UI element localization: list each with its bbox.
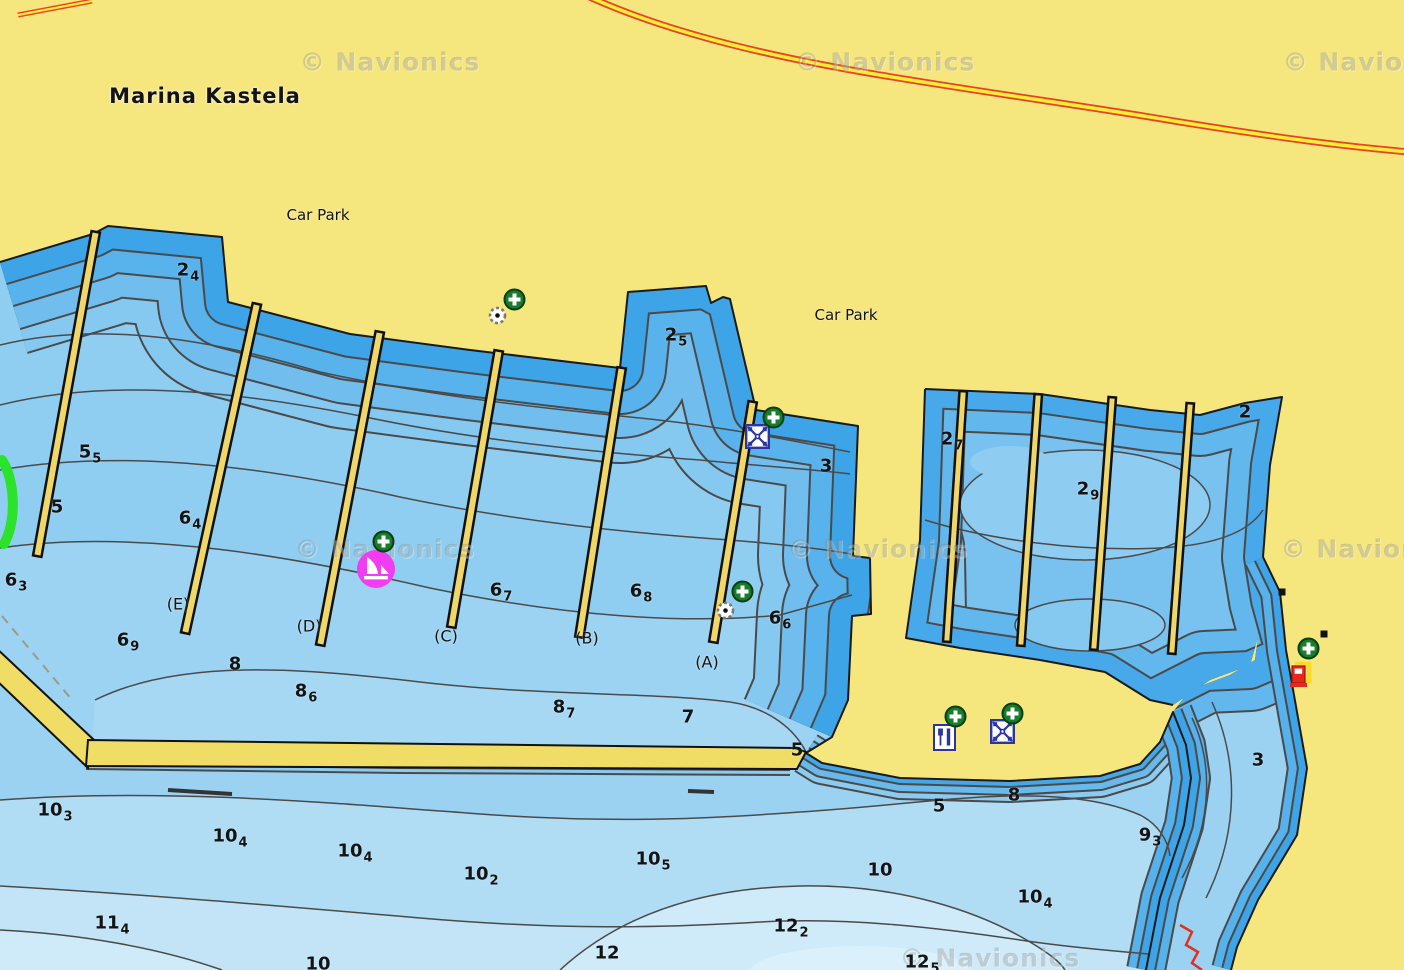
depth-sounding: 104 <box>1017 887 1052 908</box>
depth-sounding: 93 <box>1139 825 1162 846</box>
depth-sounding: 10 <box>305 954 330 970</box>
depth-sounding: 68 <box>630 581 653 602</box>
depth-sounding: 66 <box>769 608 792 629</box>
depth-sounding: 67 <box>490 580 513 601</box>
pier-label: (A) <box>695 653 718 672</box>
navionics-watermark: © Navionics <box>1281 535 1404 564</box>
depth-sounding: 114 <box>94 913 129 934</box>
depth-sounding: 7 <box>682 707 695 728</box>
depth-sounding: 3 <box>820 456 833 477</box>
depth-sounding: 8 <box>1008 785 1021 806</box>
depth-sounding: 5 <box>933 796 946 817</box>
depth-sounding: 3 <box>1252 750 1265 771</box>
depth-sounding: 69 <box>117 630 140 651</box>
depth-sounding: 105 <box>635 849 670 870</box>
depth-sounding: 86 <box>295 681 318 702</box>
depth-sounding: 12 <box>594 943 619 964</box>
depth-sounding: 64 <box>179 508 202 529</box>
depth-sounding: 102 <box>463 864 498 885</box>
depth-sounding: 2 <box>1239 402 1252 423</box>
navionics-watermark: © Navionics <box>795 48 976 77</box>
depth-sounding: 5 <box>791 740 804 761</box>
depth-sounding: 25 <box>665 325 688 346</box>
pier-label: (D) <box>297 617 322 636</box>
page-title: Marina Kastela <box>109 84 301 108</box>
pier-label: (B) <box>575 629 598 648</box>
depth-sounding: 10 <box>867 860 892 881</box>
depth-sounding: 24 <box>177 260 200 281</box>
depth-sounding: 27 <box>941 429 964 450</box>
depth-sounding: 125 <box>904 952 939 970</box>
pier-label: (E) <box>167 595 190 614</box>
depth-sounding: 87 <box>553 697 576 718</box>
depth-sounding: 104 <box>212 826 247 847</box>
navionics-watermark: © Navionics <box>788 535 969 564</box>
depth-sounding: 63 <box>5 570 28 591</box>
chart-canvas[interactable]: Car ParkCar Park© Navionics© Navionics© … <box>0 0 1404 970</box>
depth-sounding: 55 <box>79 442 102 463</box>
pier-label: (C) <box>434 627 458 646</box>
place-label: Car Park <box>814 306 877 324</box>
navionics-watermark: © Navionics <box>300 48 481 77</box>
nautical-chart-layer[interactable] <box>0 0 1404 970</box>
depth-sounding: 103 <box>37 800 72 821</box>
depth-sounding: 5 <box>51 497 64 518</box>
navionics-watermark: © Navionics <box>1283 48 1404 77</box>
depth-sounding: 104 <box>337 841 372 862</box>
depth-sounding: 122 <box>773 916 808 937</box>
depth-sounding: 8 <box>229 654 242 675</box>
place-label: Car Park <box>286 206 349 224</box>
depth-sounding: 29 <box>1077 479 1100 500</box>
